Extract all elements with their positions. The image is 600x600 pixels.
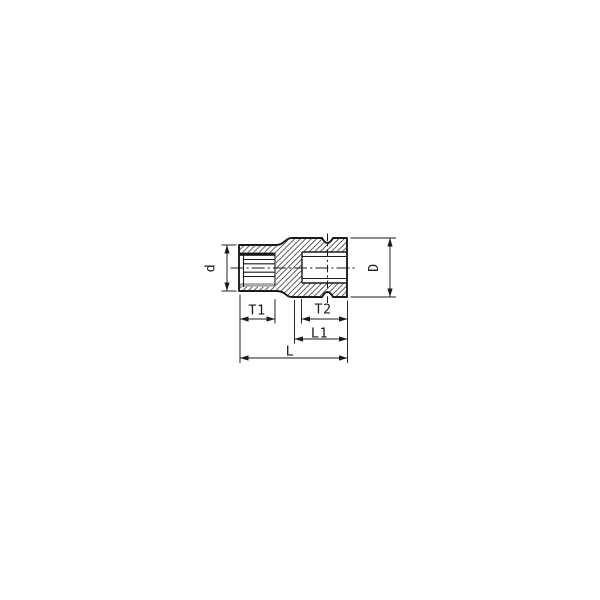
arrow-L1-right [339,336,348,341]
arrow-T2-left [302,316,311,321]
hatch-drive-end-bottom-wall [302,283,347,297]
socket-technical-drawing: d D T1 T2 L1 L [0,0,600,600]
arrow-T2-right [339,316,348,321]
hex-bore-top-shade [240,253,275,256]
arrow-L-left [240,355,249,360]
arrow-D-top [387,238,392,247]
arrow-D-bottom [387,289,392,298]
drawing-canvas: d D T1 T2 L1 L [0,0,600,600]
dim-label-T1: T1 [248,303,265,319]
arrow-L-right [339,355,348,360]
hatch-hex-end-bottom-wall [239,287,276,291]
arrow-d-bottom [224,283,229,292]
hatch-hex-end-top-wall [239,246,276,253]
arrow-T1-right [267,316,276,321]
dimension-lines [227,238,390,358]
dim-label-L1: L1 [311,326,328,342]
arrow-T1-left [240,316,249,321]
dim-label-T2: T2 [314,302,331,318]
dim-label-L: L [286,344,295,360]
hex-bore-bottom-shade [240,283,275,286]
hatch-drive-end-top-wall [302,238,347,252]
dim-label-D: D [366,263,382,272]
arrow-L1-left [295,336,304,341]
dim-label-d: d [203,264,219,273]
arrow-d-top [224,245,229,254]
